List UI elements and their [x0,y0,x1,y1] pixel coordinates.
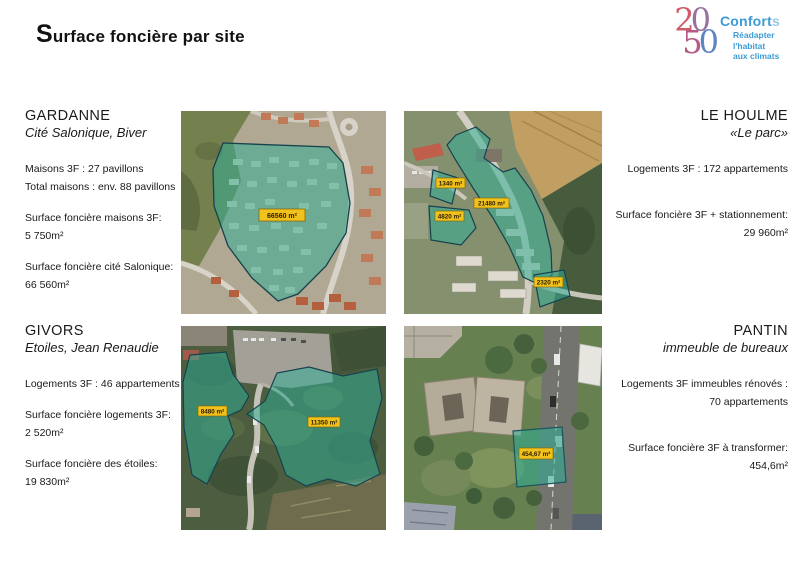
area-label-text: 21480 m² [478,201,505,208]
logo-digit-0-bottom: 0 [699,23,715,61]
site-paragraph: Logements 3F immeubles rénovés : 70 appa… [610,375,788,411]
site-paragraph: Surface foncière maisons 3F: 5 750m² [25,209,180,245]
logo-brand-main: Confort [720,13,772,29]
site-detail-line: 19 830m² [25,473,180,491]
site-detail-line: 454,6m² [610,457,788,475]
site-detail-line: 70 appartements [610,393,788,411]
area-label-text: 8480 m² [201,409,224,416]
area-label: 1340 m² [436,178,465,188]
area-label-text: 1340 m² [439,181,462,188]
area-label-text: 11350 m² [311,420,338,427]
page-title: Surface foncière par site [36,20,245,49]
site-paragraph: Surface foncière des étoiles: 19 830m² [25,455,180,491]
site-detail-line: Logements 3F : 46 appartements [25,375,180,393]
logo-tagline-line: l'habitat [733,41,792,52]
area-label: 66560 m² [259,209,305,221]
site-paragraph: Logements 3F : 172 appartements [610,160,788,178]
logo-text: Conforts Réadapter l'habitat aux climats [720,8,792,62]
aerial-background [404,326,602,530]
area-label-text: 4820 m² [438,214,461,221]
site-paragraph: Maisons 3F : 27 pavillons Total maisons … [25,160,180,196]
site-block-le-houlme: LE HOULME «Le parc» Logements 3F : 172 a… [610,108,788,255]
slide: Surface foncière par site 20 50 Conforts… [0,0,800,566]
site-detail-line: Logements 3F : 172 appartements [610,160,788,178]
site-detail-line: 2 520m² [25,424,180,442]
logo-2050-digits: 20 50 [674,8,715,55]
site-block-gardanne: GARDANNE Cité Salonique, Biver Maisons 3… [25,108,180,307]
site-detail-line: Surface foncière 3F à transformer: [610,439,788,457]
site-detail-line: Logements 3F immeubles rénovés : [610,375,788,393]
area-label-text: 454,67 m² [522,451,551,458]
logo-tagline-line: aux climats [733,51,792,62]
site-subtitle: Cité Salonique, Biver [25,125,180,141]
site-detail-line: Surface foncière 3F + stationnement: [610,206,788,224]
site-detail-line: Surface foncière logements 3F: [25,406,180,424]
site-name: PANTIN [610,323,788,340]
site-detail-line: Maisons 3F : 27 pavillons [25,160,180,178]
site-subtitle: Etoiles, Jean Renaudie [25,340,180,356]
site-detail-line: Surface foncière cité Salonique: [25,258,180,276]
site-detail-line: 5 750m² [25,227,180,245]
site-subtitle: «Le parc» [610,125,788,141]
site-paragraph: Surface foncière logements 3F: 2 520m² [25,406,180,442]
area-label: 2320 m² [534,277,563,287]
map-givors-aerial: 8480 m² 11350 m² [181,326,386,530]
logo-digit-5: 5 [682,23,698,61]
area-label-text: 66560 m² [267,213,298,220]
site-paragraph: Logements 3F : 46 appartements [25,375,180,393]
area-label-text: 2320 m² [537,280,560,287]
logo-tagline-line: Réadapter [733,30,792,41]
site-paragraph: Surface foncière 3F + stationnement: 29 … [610,206,788,242]
map-pantin-aerial: 454,67 m² [404,326,602,530]
site-name: GARDANNE [25,108,180,125]
area-label: 8480 m² [198,406,227,416]
logo-brand: Conforts [720,13,792,29]
page-title-initial: S [36,20,53,48]
site-block-pantin: PANTIN immeuble de bureaux Logements 3F … [610,323,788,488]
conforts-2050-logo: 20 50 Conforts Réadapter l'habitat aux c… [674,8,792,62]
site-block-givors: GIVORS Etoiles, Jean Renaudie Logements … [25,323,180,504]
logo-brand-s: s [772,13,780,29]
map-gardanne-aerial: 66560 m² [181,111,386,314]
site-name: LE HOULME [610,108,788,125]
site-subtitle: immeuble de bureaux [610,340,788,356]
logo-tagline: Réadapter l'habitat aux climats [720,30,792,62]
area-label: 11350 m² [308,417,340,427]
site-detail-line: Surface foncière des étoiles: [25,455,180,473]
area-label: 454,67 m² [519,448,553,459]
area-label: 21480 m² [474,198,509,208]
site-detail-line: 66 560m² [25,276,180,294]
map-le-houlme-aerial: 1340 m² 21480 m² 4820 m² 2320 m² [404,111,602,314]
site-paragraph: Surface foncière 3F à transformer: 454,6… [610,439,788,475]
page-title-rest: urface foncière par site [53,27,245,46]
area-label: 4820 m² [435,211,464,221]
site-detail-line: Surface foncière maisons 3F: [25,209,180,227]
site-detail-line: 29 960m² [610,224,788,242]
site-name: GIVORS [25,323,180,340]
site-detail-line: Total maisons : env. 88 pavillons [25,178,180,196]
site-paragraph: Surface foncière cité Salonique: 66 560m… [25,258,180,294]
